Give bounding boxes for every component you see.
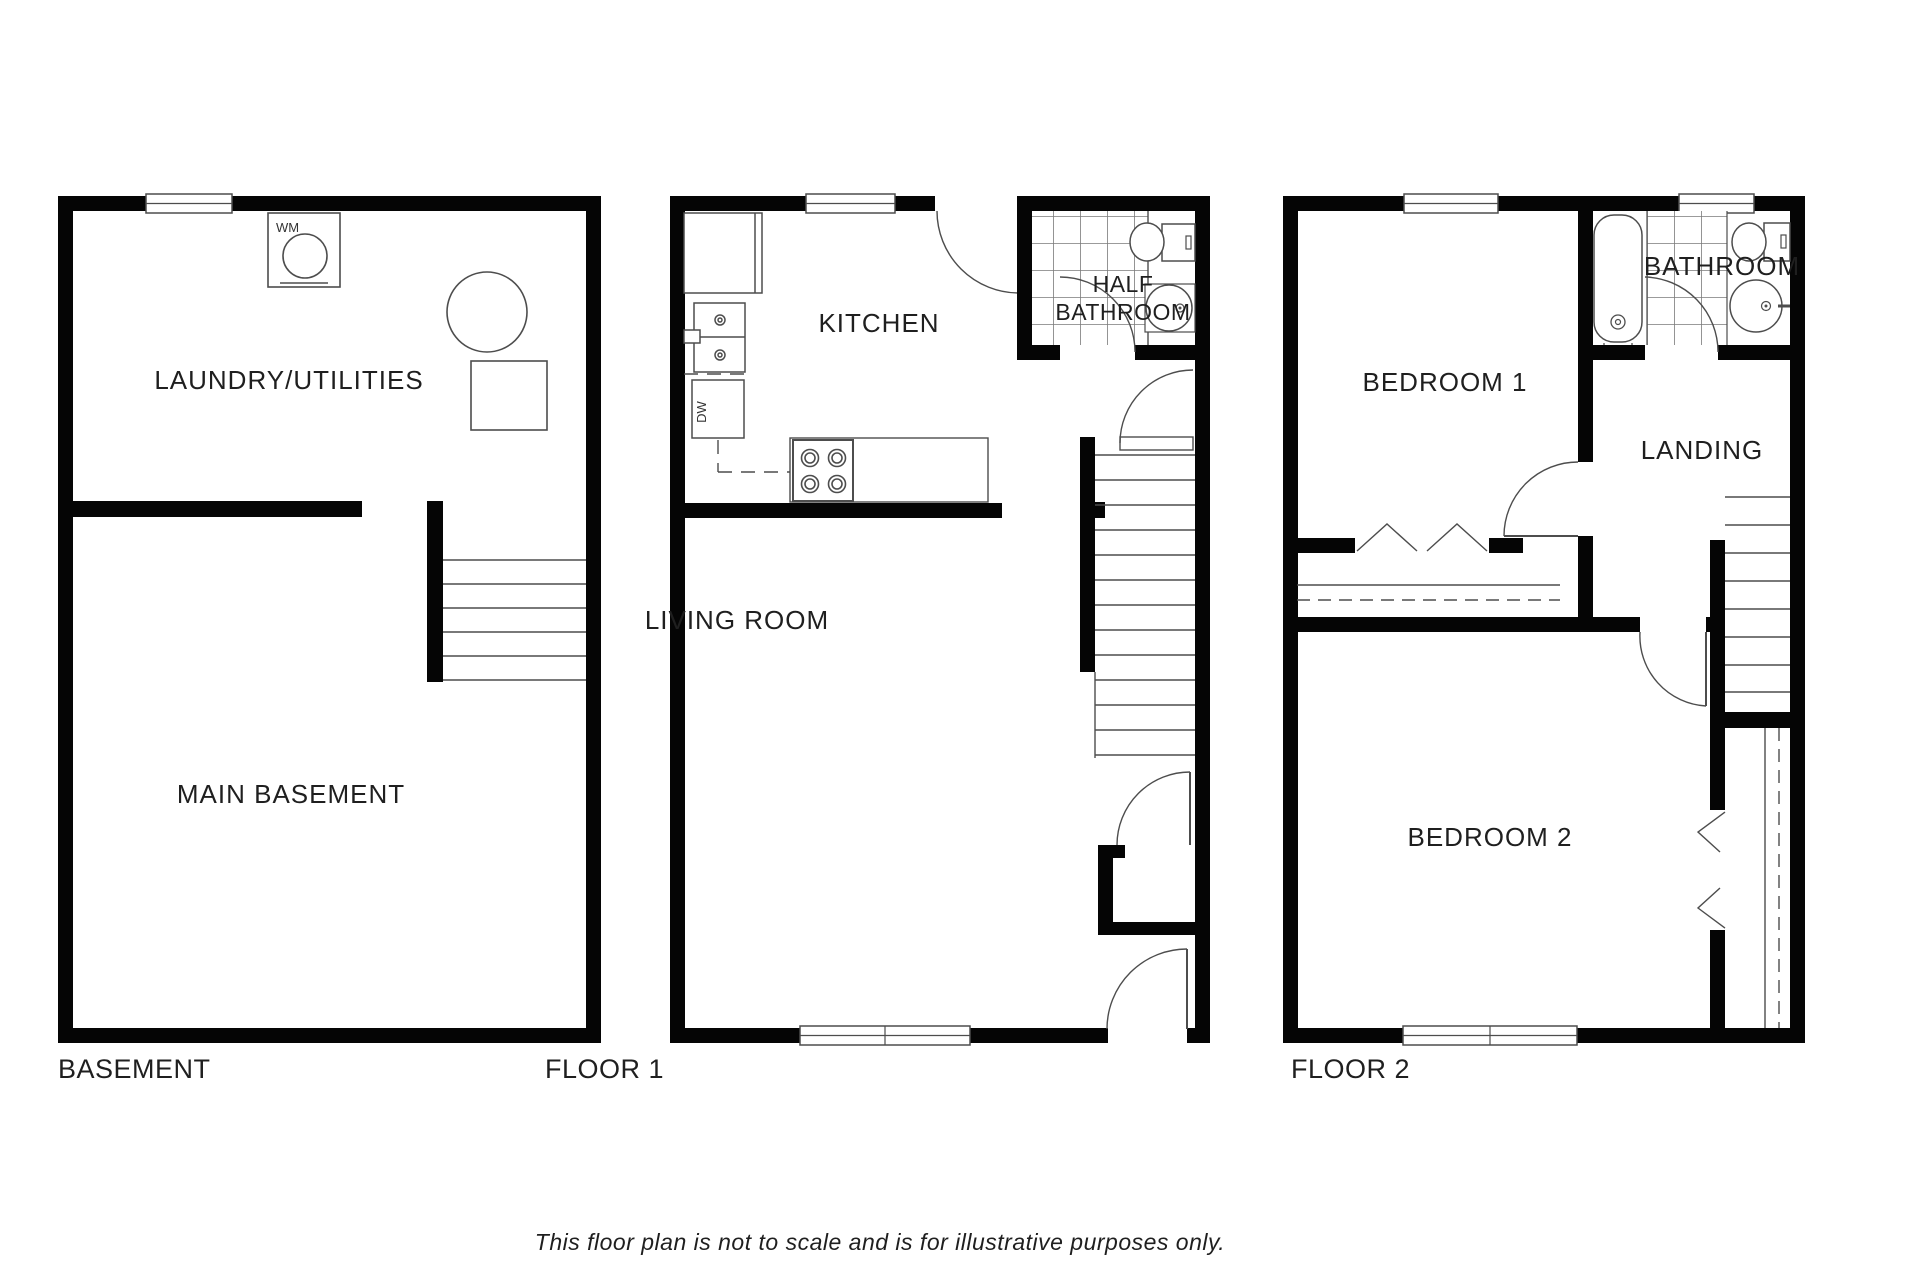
front-door-arc (1107, 949, 1187, 1029)
wall-segment (670, 196, 806, 211)
bedroom2-door (1640, 632, 1706, 706)
wall-segment (1718, 345, 1790, 360)
floor1-stairs (1080, 370, 1195, 758)
bathroom-sink-icon (1730, 280, 1790, 332)
wall-segment (1135, 345, 1210, 360)
floor1-interior-wall (670, 502, 1105, 518)
bedroom1-east-wall (1578, 196, 1593, 632)
floor2-plan: BATHROOM (1283, 194, 1805, 1084)
floor1-top-window (806, 194, 895, 213)
wall-segment (670, 1028, 800, 1043)
wall-segment (58, 1028, 601, 1043)
closet-door-chevron (1698, 812, 1725, 852)
wall-segment (1195, 196, 1210, 1043)
basement-window (146, 194, 232, 213)
wall-segment (1187, 1028, 1210, 1043)
wall-segment (1297, 538, 1355, 553)
wall-segment (1098, 922, 1195, 935)
wall-segment (970, 1028, 1108, 1043)
wall-segment (1017, 345, 1060, 360)
wall-segment (1098, 845, 1113, 935)
fridge-counter (684, 213, 762, 293)
floor1-front-door (1107, 949, 1187, 1029)
wall-segment (1710, 728, 1725, 810)
bathroom-window (1679, 194, 1754, 213)
room-label-laundry: LAUNDRY/UTILITIES (154, 365, 423, 395)
wall-segment (58, 501, 362, 517)
bedroom1-window (1404, 194, 1498, 213)
half-bathroom: HALF BATHROOM (1017, 196, 1210, 360)
wall-segment (1710, 712, 1805, 728)
wall-segment (232, 196, 601, 211)
wall-segment (1017, 196, 1210, 211)
wall-segment (1017, 196, 1032, 360)
room-label-kitchen: KITCHEN (818, 308, 939, 338)
room-label-half: HALF (1093, 271, 1154, 297)
stove-icon (793, 440, 853, 501)
basement-interior-wall (58, 501, 443, 682)
bedroom1-door-arc (1504, 462, 1578, 536)
utility-box-icon (471, 361, 547, 430)
wall-segment (427, 501, 443, 682)
floor1-plan: DW (545, 194, 1210, 1084)
room-label-main-basement: MAIN BASEMENT (177, 779, 405, 809)
bedroom1-door (1504, 462, 1578, 536)
wall-segment (58, 196, 73, 1043)
room-label-bathroom: BATHROOM (1644, 251, 1800, 281)
floor2-divider-wall (1283, 617, 1725, 632)
bedroom2-closet (1698, 728, 1779, 1028)
wall-segment (1577, 1028, 1805, 1043)
stair-door-arc (1120, 370, 1193, 443)
water-tank-icon (447, 272, 527, 352)
floorplan-page: WM LAUNDRY/UTILITIES MAIN BASEMENT BASEM… (0, 0, 1920, 1280)
wall-segment (1578, 196, 1593, 462)
toilet-icon (1130, 223, 1195, 261)
floor2-bathroom: BATHROOM (1593, 211, 1800, 360)
wall-segment (670, 503, 1002, 518)
cupboard-door-arc (1117, 772, 1190, 845)
dishwasher: DW (692, 380, 744, 438)
floor-title-floor2: FLOOR 2 (1291, 1054, 1410, 1084)
closet-door-chevron (1427, 524, 1487, 551)
bedroom2-door-arc (1640, 632, 1706, 706)
kitchen-sink-icon (684, 303, 745, 372)
closet-door-chevron (1357, 524, 1417, 551)
floor-title-floor1: FLOOR 1 (545, 1054, 664, 1084)
wall-segment (586, 196, 601, 1043)
wall-segment (1593, 345, 1645, 360)
floor1-bottom-window (800, 1026, 970, 1045)
wall-segment (1790, 196, 1805, 1043)
room-label-living-room: LIVING ROOM (645, 605, 829, 635)
room-label-landing: LANDING (1641, 435, 1764, 465)
wall-segment (1080, 437, 1095, 672)
dishwasher-label: DW (694, 400, 709, 422)
room-label-bedroom1: BEDROOM 1 (1362, 367, 1527, 397)
bathtub-icon (1594, 215, 1642, 351)
wall-segment (895, 196, 935, 211)
wall-segment (1283, 617, 1640, 632)
closet-door-chevron (1698, 888, 1725, 928)
room-label-bedroom2: BEDROOM 2 (1407, 822, 1572, 852)
disclaimer-text: This floor plan is not to scale and is f… (535, 1229, 1225, 1255)
floorplan-drawing: WM LAUNDRY/UTILITIES MAIN BASEMENT BASEM… (0, 0, 1920, 1280)
room-label-half-bathroom: BATHROOM (1055, 299, 1190, 325)
basement-stairs (443, 560, 586, 680)
wall-segment (1710, 930, 1725, 1028)
kitchen-entry-door-arc (937, 211, 1019, 293)
floor-title-basement: BASEMENT (58, 1054, 211, 1084)
understairs-cupboard (1098, 772, 1195, 935)
washing-machine-label: WM (276, 220, 299, 235)
stair-door-leaf (1120, 437, 1193, 450)
bedroom2-window (1403, 1026, 1577, 1045)
basement-plan: WM LAUNDRY/UTILITIES MAIN BASEMENT BASEM… (58, 194, 601, 1084)
wall-segment (1489, 538, 1523, 553)
wall-segment (1283, 196, 1404, 211)
wall-segment (1283, 1028, 1403, 1043)
